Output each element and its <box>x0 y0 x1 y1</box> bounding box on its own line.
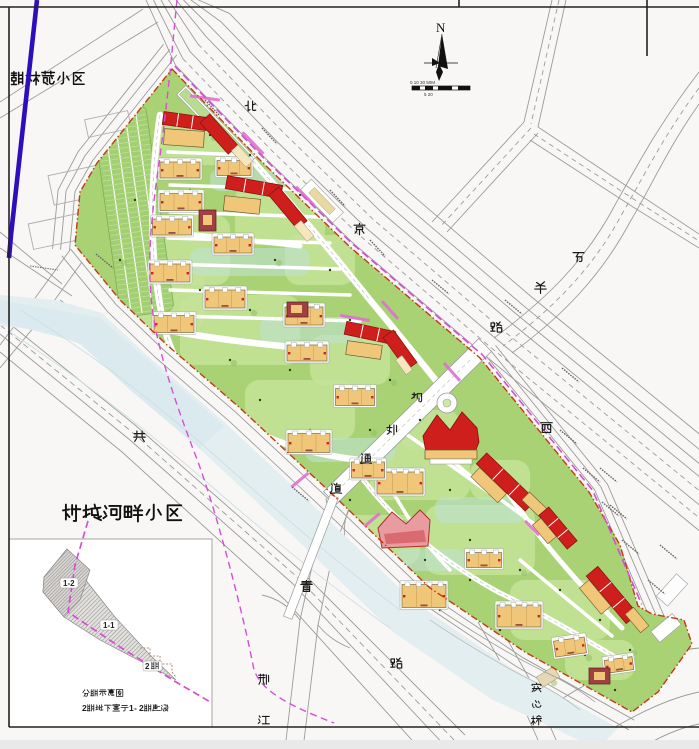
svg-text:2: 2 <box>145 662 150 671</box>
svg-text:2: 2 <box>139 703 144 713</box>
svg-text:1-2: 1-2 <box>63 579 75 588</box>
svg-text:5 20: 5 20 <box>424 92 433 97</box>
svg-text:N: N <box>436 20 446 35</box>
svg-text:1-1: 1-1 <box>103 621 115 630</box>
svg-text:2: 2 <box>82 703 87 713</box>
svg-text:0 10 30 50M: 0 10 30 50M <box>410 80 435 85</box>
svg-text:-: - <box>134 703 137 713</box>
